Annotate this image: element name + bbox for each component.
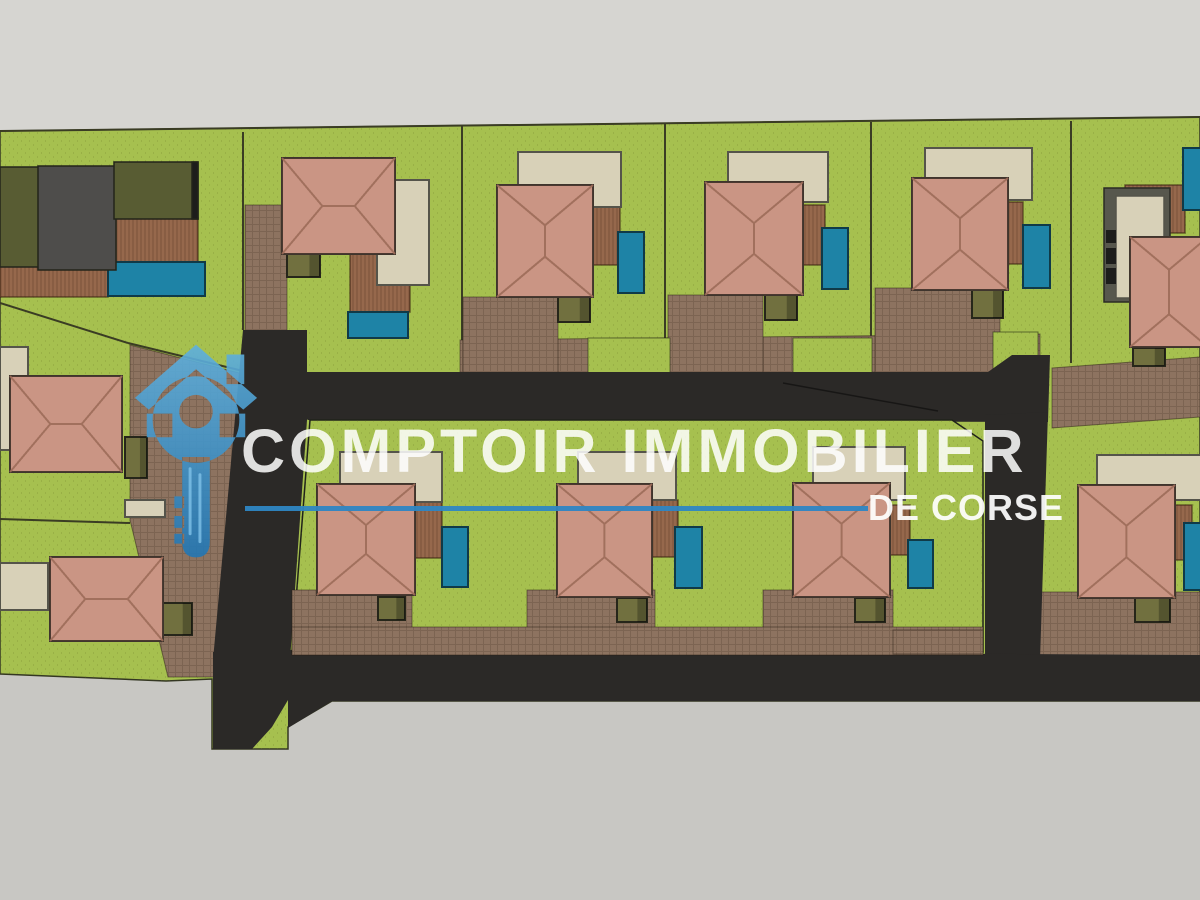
driveway-paving bbox=[245, 205, 287, 331]
house-hip-roof bbox=[1078, 485, 1175, 598]
swimming-pool bbox=[108, 262, 205, 296]
watermark-subtitle: DE CORSE bbox=[820, 490, 1064, 526]
driveway-paving bbox=[1052, 357, 1200, 428]
driveway-paving bbox=[1035, 592, 1200, 657]
swimming-pool bbox=[1184, 523, 1200, 590]
asphalt-road bbox=[288, 650, 1200, 728]
background-upper bbox=[0, 0, 1200, 131]
swimming-pool bbox=[822, 228, 848, 289]
house-hip-roof bbox=[497, 185, 593, 297]
swimming-pool bbox=[675, 527, 702, 588]
window bbox=[1106, 248, 1116, 264]
driveway-paving bbox=[893, 630, 983, 654]
window bbox=[1106, 230, 1116, 243]
driveway-paving bbox=[463, 297, 558, 378]
driveway-paving bbox=[668, 295, 763, 378]
swimming-pool bbox=[1183, 148, 1200, 210]
house-hip-roof bbox=[10, 376, 122, 472]
house-hip-roof bbox=[1130, 237, 1200, 347]
deck-paving bbox=[593, 205, 620, 265]
house-hip-roof bbox=[317, 484, 415, 595]
watermark-title: COMPTOIR IMMOBILIER bbox=[241, 421, 1028, 482]
window bbox=[1106, 268, 1116, 284]
flat-roof-house bbox=[38, 166, 116, 270]
swimming-pool bbox=[618, 232, 644, 293]
swimming-pool bbox=[348, 312, 408, 338]
swimming-pool bbox=[1023, 225, 1050, 288]
watermark-underline bbox=[245, 506, 868, 511]
flat-roof-house bbox=[0, 167, 40, 267]
house-hip-roof bbox=[282, 158, 395, 254]
swimming-pool bbox=[908, 540, 933, 588]
house-hip-roof bbox=[50, 557, 163, 641]
flat-roof-house bbox=[192, 162, 198, 219]
deck-paving bbox=[114, 218, 198, 264]
flat-roof-house bbox=[114, 162, 198, 219]
house-hip-roof bbox=[705, 182, 803, 295]
site-plan-render: COMPTOIR IMMOBILIER DE CORSE bbox=[0, 0, 1200, 900]
house-hip-roof bbox=[912, 178, 1008, 290]
house-hip-roof bbox=[557, 484, 652, 597]
swimming-pool bbox=[442, 527, 468, 587]
terrace bbox=[0, 563, 48, 610]
driveway-paving bbox=[292, 627, 983, 655]
